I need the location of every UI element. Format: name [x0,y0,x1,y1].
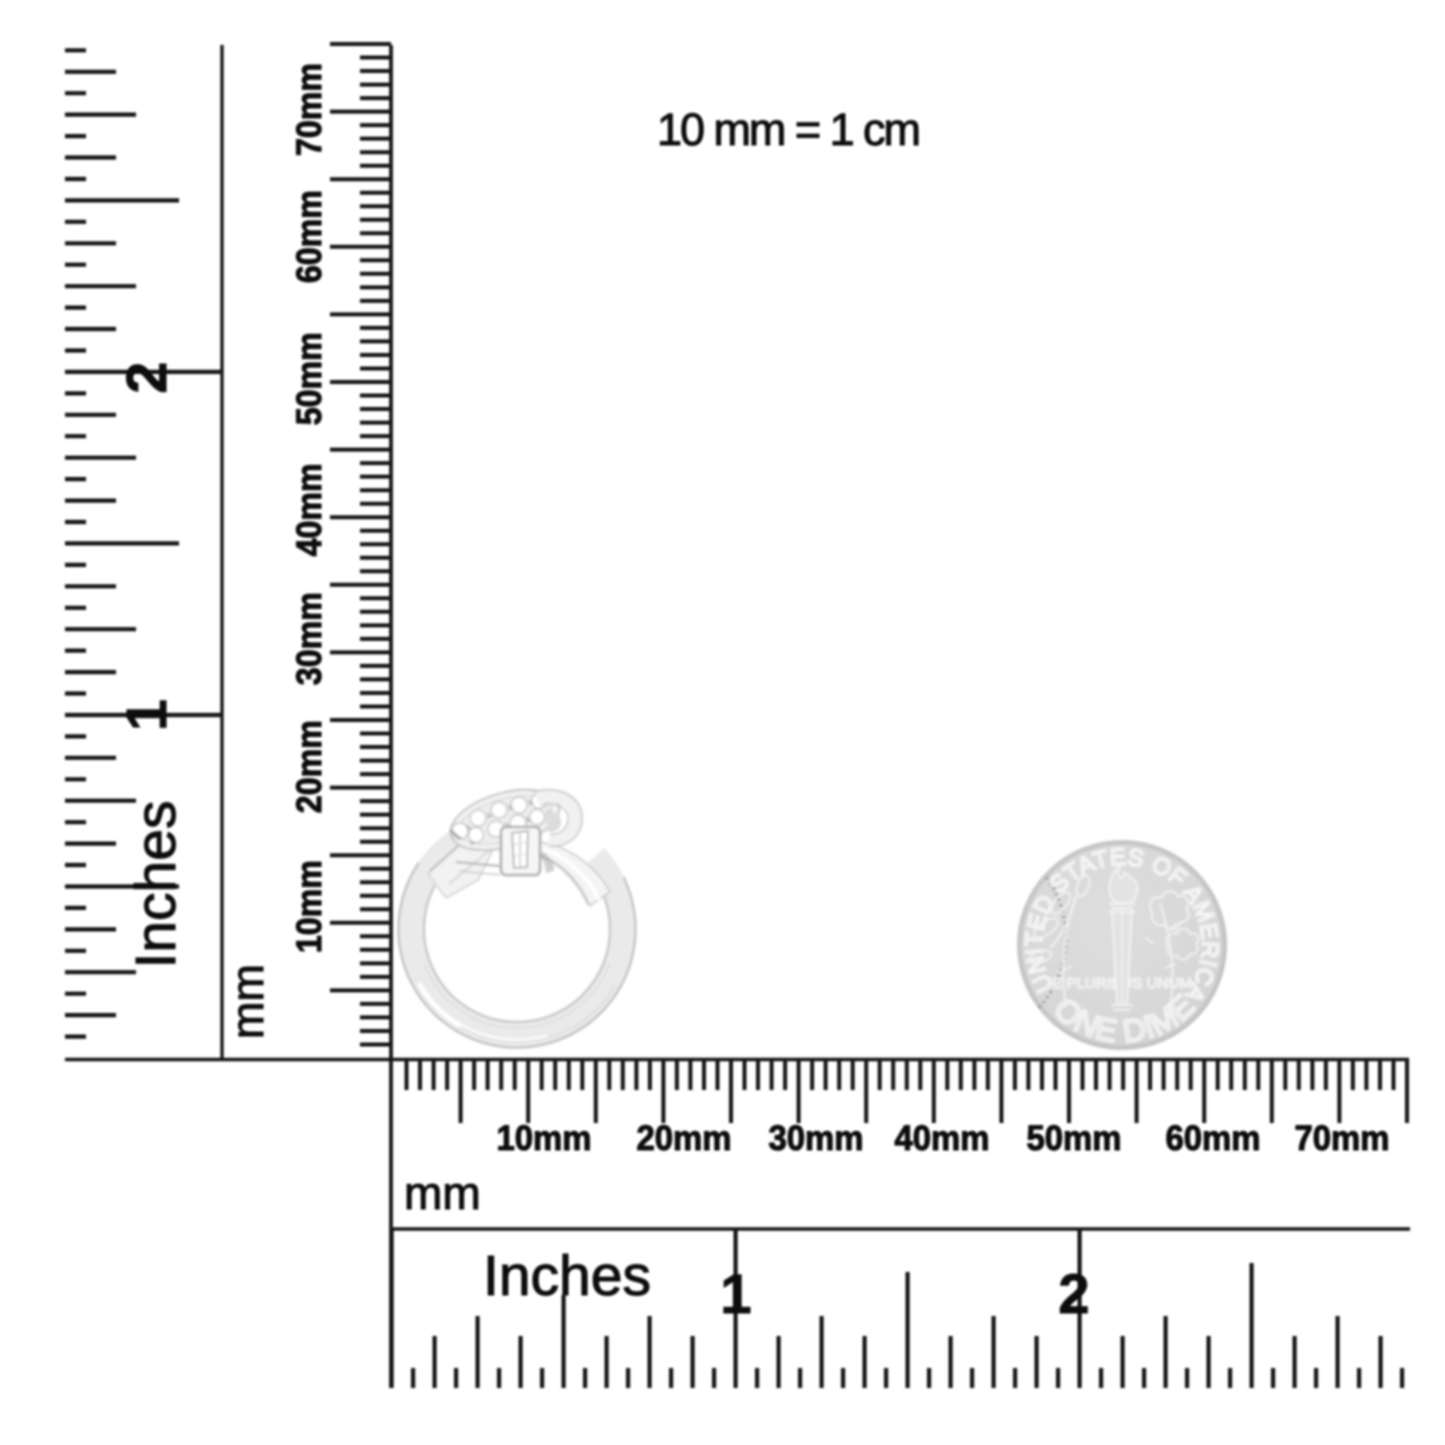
svg-text:Inches: Inches [124,801,188,969]
svg-text:40mm: 40mm [290,463,329,556]
svg-text:20mm: 20mm [637,1119,732,1158]
svg-text:1: 1 [720,1262,751,1325]
svg-text:50mm: 50mm [290,332,329,425]
svg-text:30mm: 30mm [769,1119,864,1158]
svg-text:1: 1 [115,699,179,731]
svg-text:Inches: Inches [483,1244,651,1308]
svg-text:60mm: 60mm [290,190,329,283]
svg-text:20mm: 20mm [290,720,329,813]
svg-text:mm: mm [222,964,273,1039]
svg-text:40mm: 40mm [895,1119,990,1158]
svg-text:mm: mm [404,1167,481,1219]
svg-text:50mm: 50mm [1027,1119,1122,1158]
svg-text:2: 2 [1058,1262,1089,1325]
svg-text:10mm: 10mm [290,860,329,953]
svg-text:70mm: 70mm [290,63,329,156]
svg-text:60mm: 60mm [1166,1119,1261,1158]
svg-text:10mm: 10mm [497,1119,592,1158]
svg-text:2: 2 [115,362,179,394]
svg-text:70mm: 70mm [1295,1119,1390,1158]
svg-text:10 mm = 1 cm: 10 mm = 1 cm [657,104,921,155]
svg-text:30mm: 30mm [290,592,329,685]
